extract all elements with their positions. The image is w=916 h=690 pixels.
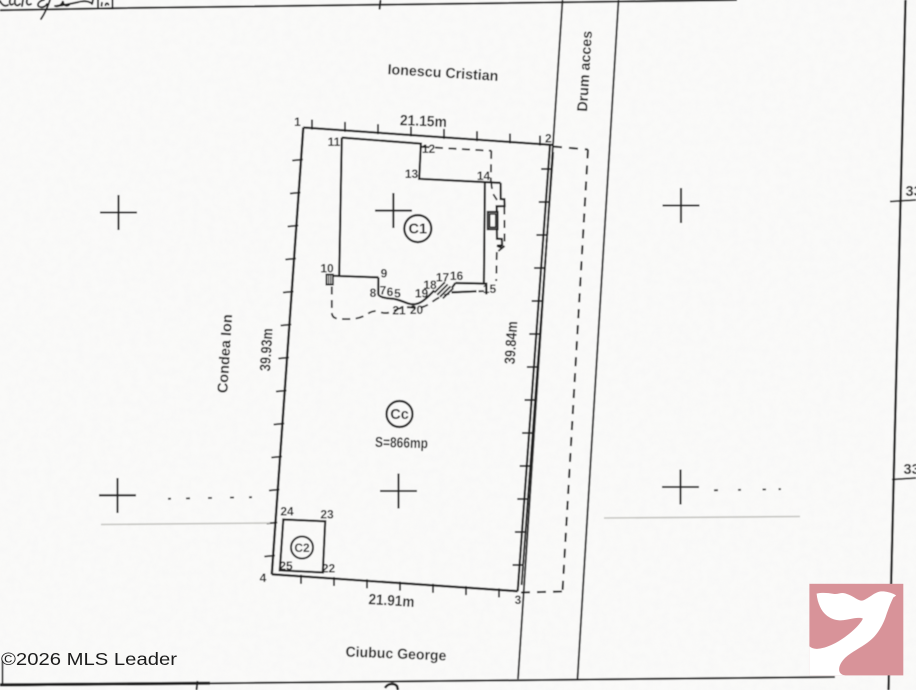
svg-text:©2026 MLS Leader: ©2026 MLS Leader <box>1 649 177 669</box>
